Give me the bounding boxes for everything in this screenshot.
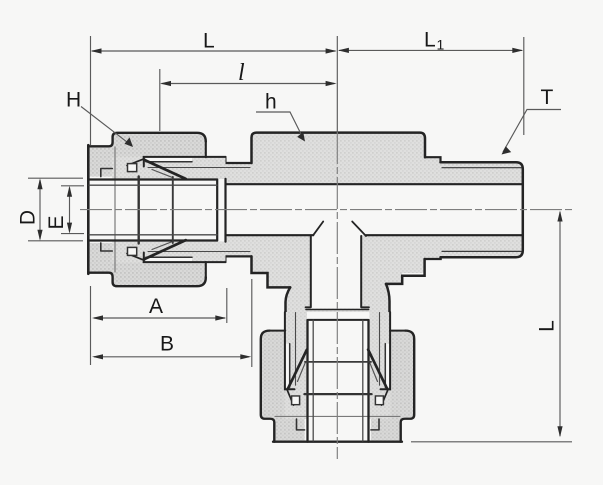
svg-text:h: h	[265, 91, 277, 114]
svg-text:L: L	[536, 320, 559, 332]
svg-text:E: E	[45, 215, 68, 229]
svg-text:T: T	[541, 86, 554, 109]
svg-text:l: l	[238, 60, 245, 86]
svg-text:L: L	[424, 29, 436, 52]
svg-text:H: H	[66, 89, 81, 112]
svg-text:A: A	[149, 295, 163, 318]
svg-text:1: 1	[437, 37, 445, 53]
svg-text:D: D	[17, 210, 40, 225]
svg-text:L: L	[203, 30, 215, 53]
svg-text:B: B	[160, 333, 174, 356]
